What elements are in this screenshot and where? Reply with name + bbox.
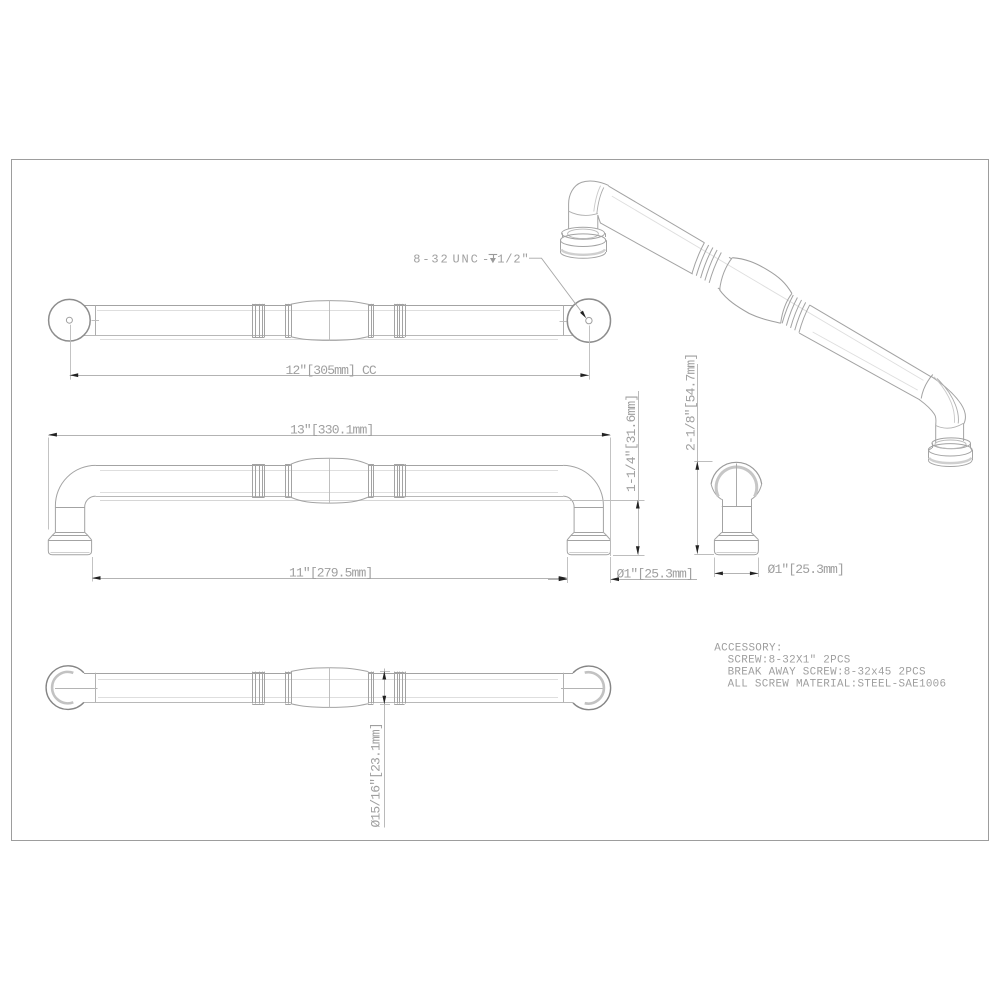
svg-text:Ø1"[25.3mm]: Ø1"[25.3mm]: [617, 567, 693, 582]
svg-text:11"[279.5mm]: 11"[279.5mm]: [289, 566, 372, 581]
svg-text:2-1/8"[54.7mm]: 2-1/8"[54.7mm]: [684, 354, 699, 451]
svg-text:1-1/4"[31.6mm]: 1-1/4"[31.6mm]: [624, 395, 639, 492]
svg-text:SCREW:8-32X1" 2PCS: SCREW:8-32X1" 2PCS: [728, 655, 851, 667]
svg-text:Ø1"[25.3mm]: Ø1"[25.3mm]: [768, 562, 844, 577]
svg-text:ACCESSORY:: ACCESSORY:: [714, 643, 782, 655]
svg-text:13"[330.1mm]: 13"[330.1mm]: [290, 422, 373, 437]
svg-text:Ø15/16"[23.1mm]: Ø15/16"[23.1mm]: [369, 723, 384, 827]
svg-text:ALL SCREW MATERIAL:STEEL-SAE10: ALL SCREW MATERIAL:STEEL-SAE1006: [728, 679, 947, 691]
svg-text:8-32: 8-32: [413, 253, 449, 267]
svg-text:1/2": 1/2": [497, 253, 529, 267]
svg-text:UNC: UNC: [453, 253, 480, 267]
svg-text:12"[305mm] CC: 12"[305mm] CC: [286, 363, 377, 378]
svg-text:BREAK AWAY SCREW:8-32x45 2PCS: BREAK AWAY SCREW:8-32x45 2PCS: [728, 667, 926, 679]
